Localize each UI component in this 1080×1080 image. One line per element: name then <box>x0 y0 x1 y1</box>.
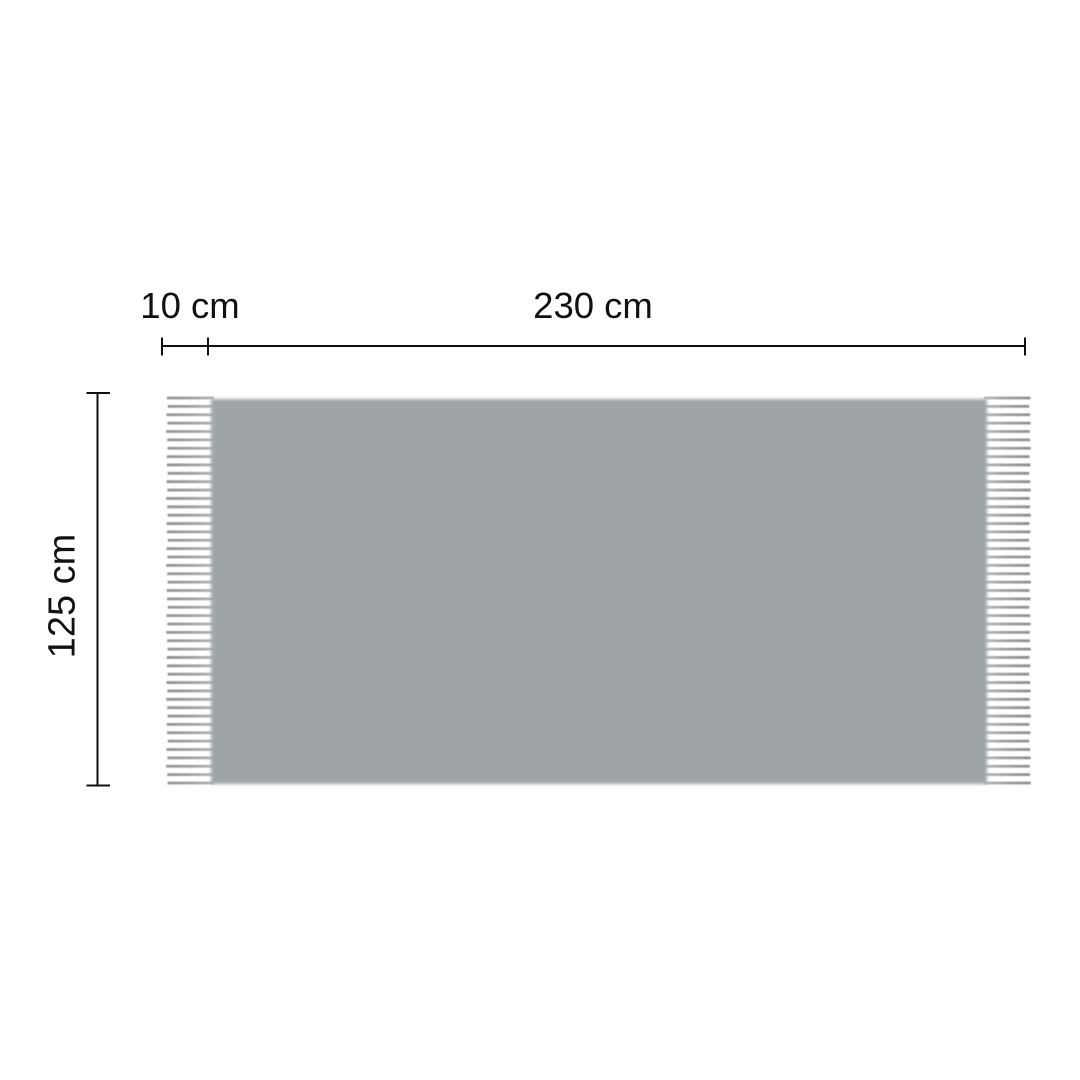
svg-text:10 cm: 10 cm <box>140 285 239 326</box>
svg-text:125 cm: 125 cm <box>42 534 84 659</box>
svg-text:230 cm: 230 cm <box>533 285 653 326</box>
